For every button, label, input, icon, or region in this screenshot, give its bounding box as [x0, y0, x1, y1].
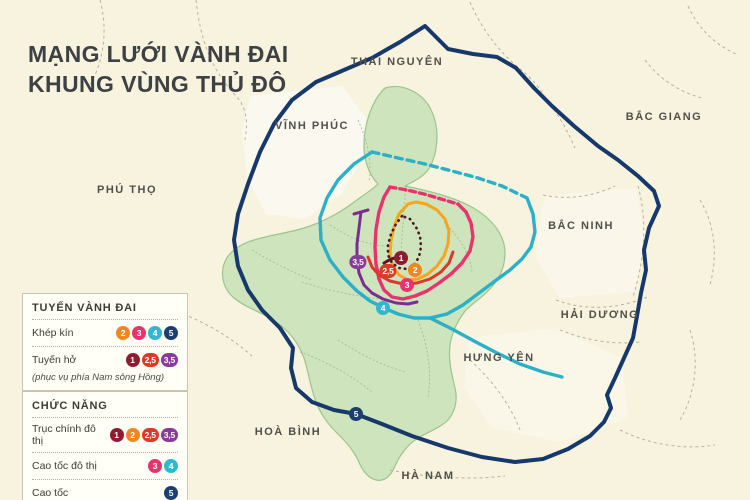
legend-row-expressway-label: Cao tốc: [32, 487, 68, 499]
legend-functions-title: CHỨC NĂNG: [32, 400, 178, 412]
map-label-hung-yen: HƯNG YÊN: [463, 352, 534, 364]
legend-row-open: Tuyến hở 1 2,5 3,5: [32, 352, 178, 368]
legend-badge-5: 5: [164, 326, 178, 340]
legend-functions: CHỨC NĂNG Trục chính đô thị 1 2 2,5 3,5 …: [22, 391, 188, 500]
legend-badge-3: 3: [132, 326, 146, 340]
legend-row-open-badges: 1 2,5 3,5: [126, 353, 178, 367]
legend-row-expressway: Cao tốc 5: [32, 485, 178, 500]
map-badge-ring-2: 2: [408, 263, 422, 277]
legend-badge-2: 2: [126, 428, 140, 442]
map-label-vinh-phuc: VĨNH PHÚC: [275, 120, 349, 132]
legend-row-expressway-badges: 5: [164, 486, 178, 500]
map-label-hai-duong: HẢI DƯƠNG: [561, 309, 639, 321]
map-label-thai-nguyen: THÁI NGUYÊN: [351, 56, 443, 68]
divider: [32, 417, 178, 418]
legend-badge-1: 1: [126, 353, 140, 367]
legend-badge-4: 4: [148, 326, 162, 340]
legend-badge-3-5: 3,5: [161, 428, 178, 442]
legend-row-urban-axis-label: Trục chính đô thị: [32, 423, 110, 447]
divider: [32, 479, 178, 480]
map-label-bac-ninh: BẮC NINH: [548, 220, 614, 232]
legend-row-closed: Khép kín 2 3 4 5: [32, 325, 178, 341]
legend-row-closed-badges: 2 3 4 5: [116, 326, 178, 340]
page-title-line1: MẠNG LƯỚI VÀNH ĐAI: [28, 40, 289, 70]
map-label-ha-nam: HÀ NAM: [402, 470, 455, 482]
legend-badge-3-5: 3,5: [161, 353, 178, 367]
divider: [32, 319, 178, 320]
legend-badge-2-5: 2,5: [142, 353, 159, 367]
legend-badge-1: 1: [110, 428, 124, 442]
legend-badge-3: 3: [148, 459, 162, 473]
legend-row-urban-axis-badges: 1 2 2,5 3,5: [110, 428, 178, 442]
bac-ninh-region: [536, 188, 646, 298]
legend-badge-2: 2: [116, 326, 130, 340]
legend-row-urban-expressway: Cao tốc đô thị 3 4: [32, 458, 178, 474]
map-badge-ring-4: 4: [376, 301, 390, 315]
map-label-phu-tho: PHÚ THỌ: [97, 184, 157, 196]
map-badge-ring-5: 5: [349, 407, 363, 421]
map-label-bac-giang: BẮC GIANG: [626, 111, 702, 123]
legend-badge-2-5: 2,5: [142, 428, 159, 442]
map-badge-ring-2-5: 2,5: [379, 264, 396, 278]
page-title: MẠNG LƯỚI VÀNH ĐAI KHUNG VÙNG THỦ ĐÔ: [28, 40, 289, 100]
legend-note: (phục vụ phía Nam sông Hồng): [32, 372, 178, 383]
page-title-line2: KHUNG VÙNG THỦ ĐÔ: [28, 70, 289, 100]
legend-row-urban-expressway-label: Cao tốc đô thị: [32, 460, 97, 472]
legend-row-urban-axis: Trục chính đô thị 1 2 2,5 3,5: [32, 423, 178, 447]
map-label-hoa-binh: HOÀ BÌNH: [255, 426, 321, 438]
legend-row-open-label: Tuyến hở: [32, 354, 76, 366]
map-infographic: MẠNG LƯỚI VÀNH ĐAI KHUNG VÙNG THỦ ĐÔ THÁ…: [0, 0, 750, 500]
legend-ring-routes: TUYẾN VÀNH ĐAI Khép kín 2 3 4 5 Tuyến hở…: [22, 293, 188, 391]
legend-badge-5: 5: [164, 486, 178, 500]
legend-row-closed-label: Khép kín: [32, 327, 73, 339]
legend-badge-4: 4: [164, 459, 178, 473]
legend-row-urban-expressway-badges: 3 4: [148, 459, 178, 473]
divider: [32, 452, 178, 453]
legend-ring-routes-title: TUYẾN VÀNH ĐAI: [32, 302, 178, 314]
map-badge-ring-1: 1: [394, 251, 408, 265]
map-badge-ring-3: 3: [400, 278, 414, 292]
divider: [32, 346, 178, 347]
map-badge-ring-3-5: 3,5: [349, 255, 366, 269]
